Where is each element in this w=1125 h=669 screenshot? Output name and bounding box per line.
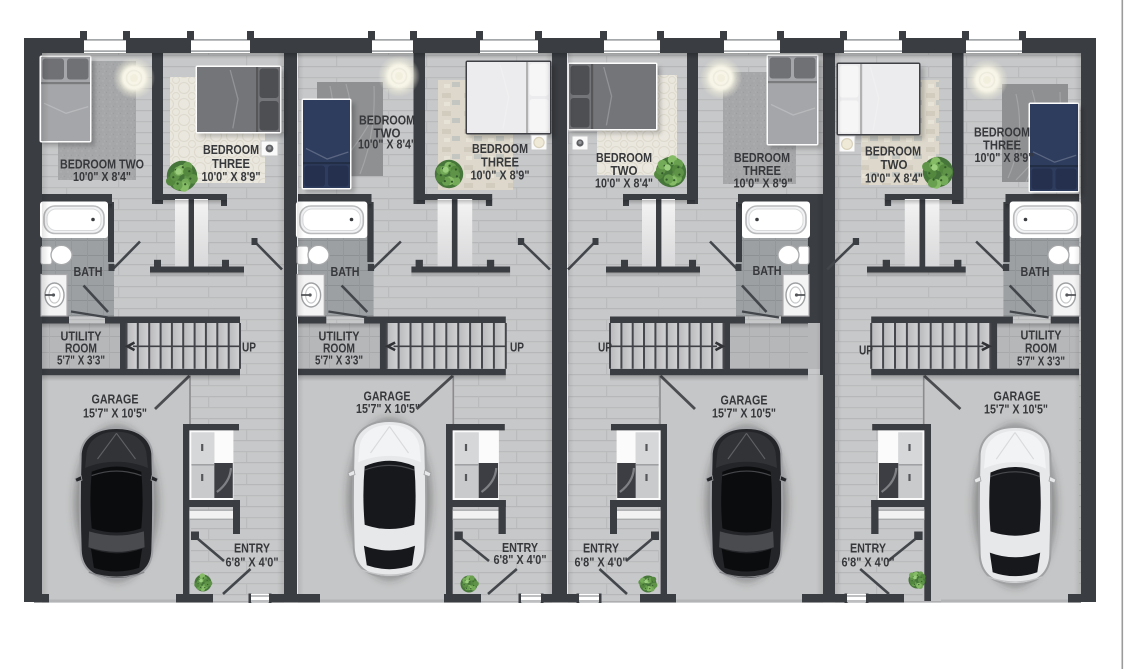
svg-text:ENTRY: ENTRY xyxy=(583,542,620,556)
svg-text:BEDROOM: BEDROOM xyxy=(472,142,528,156)
svg-text:15'7" X 10'5": 15'7" X 10'5" xyxy=(83,407,147,421)
svg-text:THREE: THREE xyxy=(212,157,250,171)
svg-text:BATH: BATH xyxy=(331,265,360,279)
svg-text:10'0" X 8'4": 10'0" X 8'4" xyxy=(73,170,131,184)
svg-text:UP: UP xyxy=(510,341,524,355)
svg-text:10'0" X 8'9": 10'0" X 8'9" xyxy=(734,177,793,191)
svg-text:6'8" X 4'0": 6'8" X 4'0" xyxy=(842,556,895,570)
svg-text:BEDROOM: BEDROOM xyxy=(734,151,790,165)
svg-text:UP: UP xyxy=(859,344,873,358)
svg-text:UTILITY: UTILITY xyxy=(1021,329,1063,343)
svg-text:10'0" X 8'9": 10'0" X 8'9" xyxy=(471,169,530,183)
svg-text:5'7" X 3'3": 5'7" X 3'3" xyxy=(1017,355,1065,369)
svg-text:10'0" X 8'4": 10'0" X 8'4" xyxy=(358,138,416,152)
svg-text:BEDROOM: BEDROOM xyxy=(865,145,921,159)
svg-text:6'8" X 4'0": 6'8" X 4'0" xyxy=(494,553,547,567)
svg-text:BATH: BATH xyxy=(74,265,103,279)
svg-text:UP: UP xyxy=(242,341,256,355)
svg-text:15'7" X 10'5": 15'7" X 10'5" xyxy=(712,407,776,421)
svg-text:5'7" X 3'3": 5'7" X 3'3" xyxy=(57,354,105,368)
svg-text:ROOM: ROOM xyxy=(1025,342,1057,356)
svg-text:10'0" X 8'4": 10'0" X 8'4" xyxy=(595,177,653,191)
svg-text:ENTRY: ENTRY xyxy=(850,542,887,556)
svg-text:TWO: TWO xyxy=(881,158,908,172)
svg-text:15'7" X 10'5": 15'7" X 10'5" xyxy=(984,403,1048,417)
svg-text:5'7" X 3'3": 5'7" X 3'3" xyxy=(315,354,363,368)
svg-text:ENTRY: ENTRY xyxy=(234,542,271,556)
svg-text:6'8" X 4'0": 6'8" X 4'0" xyxy=(226,556,279,570)
svg-text:BEDROOM: BEDROOM xyxy=(596,151,652,165)
svg-text:10'0" X 8'9": 10'0" X 8'9" xyxy=(202,170,261,184)
svg-text:GARAGE: GARAGE xyxy=(721,394,768,408)
svg-text:UP: UP xyxy=(598,341,612,355)
svg-text:6'8" X 4'0": 6'8" X 4'0" xyxy=(575,556,628,570)
svg-text:BEDROOM: BEDROOM xyxy=(203,143,259,157)
svg-text:BEDROOM: BEDROOM xyxy=(359,114,415,128)
svg-text:GARAGE: GARAGE xyxy=(994,390,1041,404)
svg-text:10'0" X 8'4": 10'0" X 8'4" xyxy=(865,172,923,186)
svg-text:BEDROOM: BEDROOM xyxy=(974,126,1030,140)
svg-text:BATH: BATH xyxy=(753,264,782,278)
svg-text:10'0" X 8'9": 10'0" X 8'9" xyxy=(975,151,1034,165)
svg-text:GARAGE: GARAGE xyxy=(92,393,139,407)
svg-text:BATH: BATH xyxy=(1021,265,1050,279)
svg-text:THREE: THREE xyxy=(481,156,519,170)
svg-text:15'7" X 10'5": 15'7" X 10'5" xyxy=(356,402,420,416)
